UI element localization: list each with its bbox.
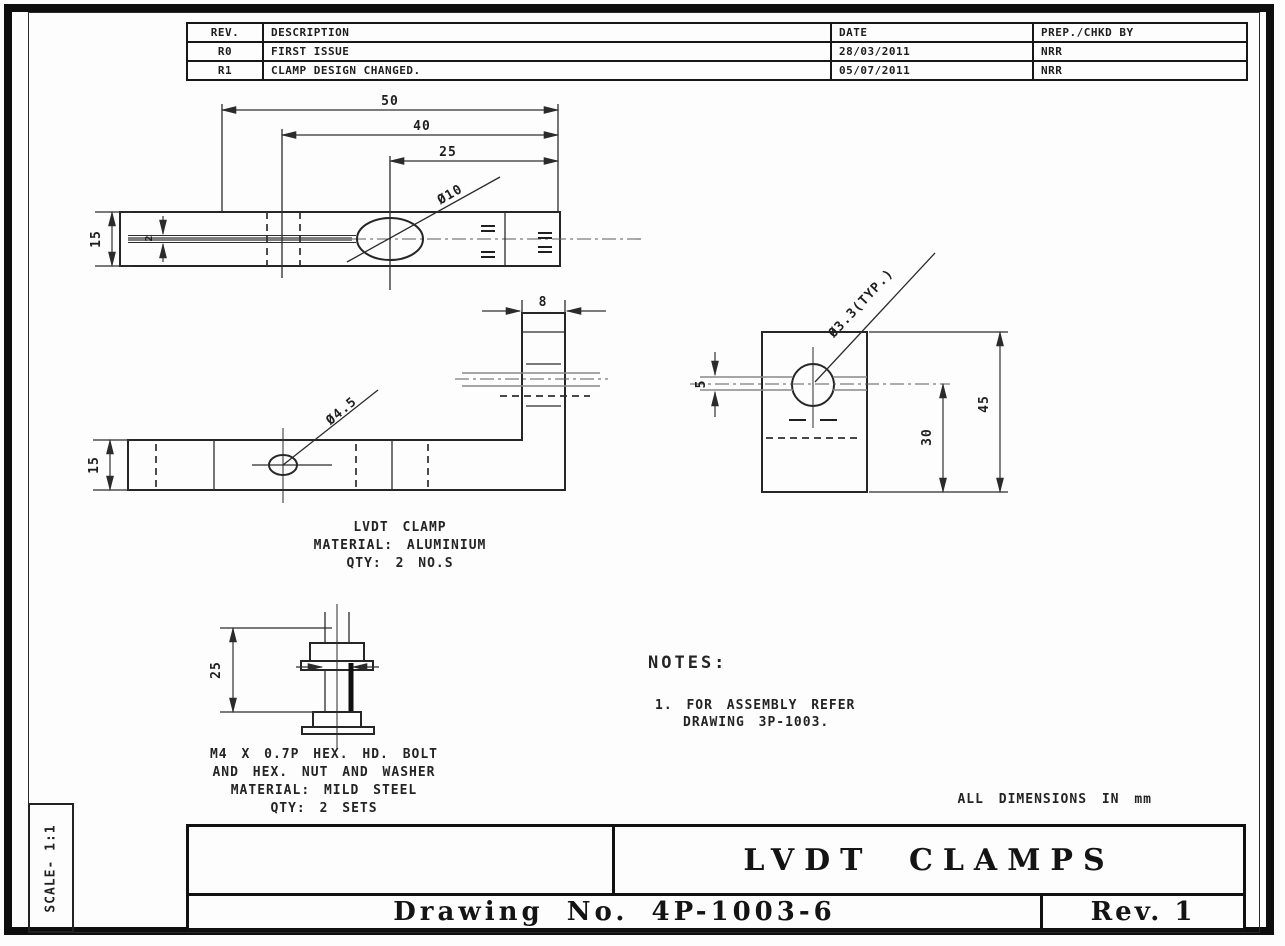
note-1-line2: DRAWING 3P-1003.: [655, 714, 855, 731]
drawing-sheet: REV. DESCRIPTION DATE PREP./CHKD BY R0 F…: [0, 0, 1285, 946]
dim-side-5: 5: [694, 380, 709, 389]
scale-label: SCALE- 1:1: [44, 824, 59, 912]
bolt-part-label: M4 X 0.7P HEX. HD. BOLT AND HEX. NUT AND…: [138, 746, 510, 818]
dim-top-40: 40: [413, 119, 431, 134]
title-block: LVDT CLAMPS Drawing No. 4P-1003-6 Rev. 1: [186, 824, 1246, 931]
dimensions-units-note: ALL DIMENSIONS IN mm: [840, 792, 1152, 807]
dim-front-8: 8: [539, 295, 548, 310]
notes-title: NOTES:: [648, 653, 727, 673]
drawing-revision: Rev. 1: [1043, 896, 1243, 928]
bolt-label-line4: QTY: 2 SETS: [138, 800, 510, 818]
dim-top-15: 15: [89, 230, 104, 248]
scale-box: SCALE- 1:1: [28, 803, 74, 933]
bolt-label-line2: AND HEX. NUT AND WASHER: [138, 764, 510, 782]
dim-front-hole: Ø4.5: [323, 394, 360, 429]
clamp-part-label: LVDT CLAMP MATERIAL: ALUMINIUM QTY: 2 NO…: [240, 519, 560, 573]
dim-front-15: 15: [87, 456, 102, 474]
bolt-view: 25: [209, 604, 379, 748]
dim-side-hole: Ø3.3(TYP.): [825, 266, 897, 342]
dim-side-45: 45: [977, 395, 992, 413]
title-block-bottom-row: Drawing No. 4P-1003-6 Rev. 1: [189, 896, 1243, 928]
clamp-label-line1: LVDT CLAMP: [240, 519, 560, 537]
clamp-label-line2: MATERIAL: ALUMINIUM: [240, 537, 560, 555]
bolt-label-line1: M4 X 0.7P HEX. HD. BOLT: [138, 746, 510, 764]
dim-side-30: 30: [920, 428, 935, 446]
note-item-1: 1. FOR ASSEMBLY REFER DRAWING 3P-1003.: [655, 697, 855, 731]
clamp-label-line3: QTY: 2 NO.S: [240, 555, 560, 573]
front-view: Ø4.5 15 8: [87, 295, 608, 503]
side-view: Ø3.3(TYP.) 5 45 30: [690, 253, 1008, 492]
note-1-line1: 1. FOR ASSEMBLY REFER: [655, 697, 855, 714]
drawing-number: Drawing No. 4P-1003-6: [189, 896, 1043, 928]
title-block-top-row: LVDT CLAMPS: [189, 827, 1243, 896]
dim-top-25: 25: [439, 145, 457, 160]
dim-bolt-25: 25: [209, 661, 224, 679]
title-block-empty-cell: [189, 827, 615, 893]
dim-top-50: 50: [381, 94, 399, 109]
bolt-label-line3: MATERIAL: MILD STEEL: [138, 782, 510, 800]
drawing-title: LVDT CLAMPS: [615, 827, 1243, 893]
dim-top-2: 2: [144, 234, 155, 241]
top-view: Ø10 50 40 25 15 2: [89, 94, 642, 290]
